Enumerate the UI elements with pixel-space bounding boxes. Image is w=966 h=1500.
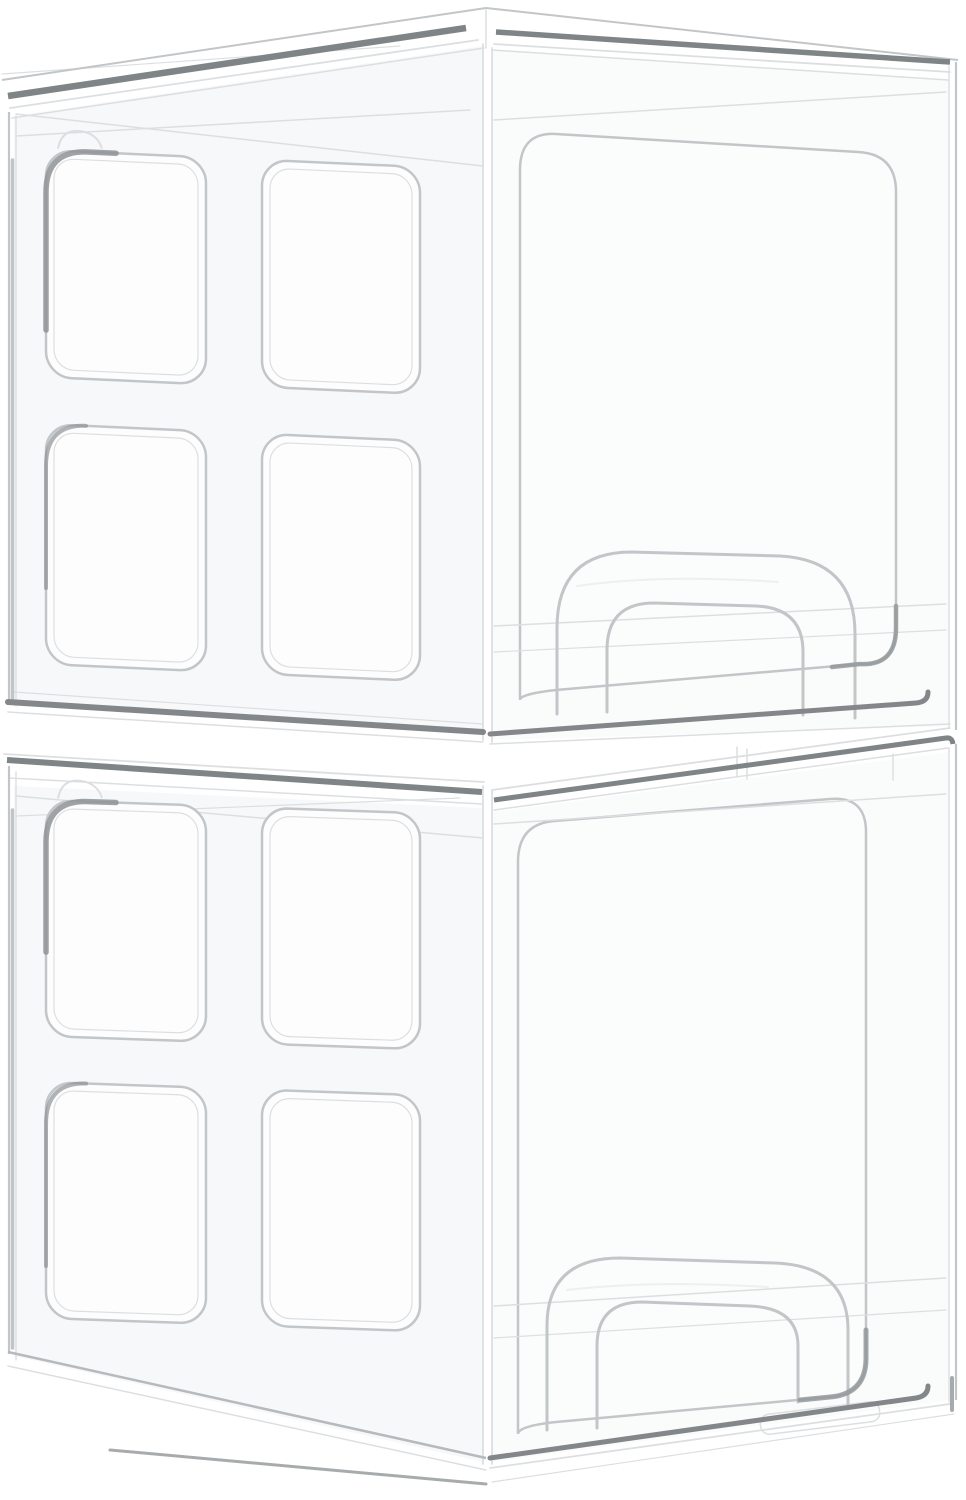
bottom-drawer-front-panel <box>518 799 866 1434</box>
side-panel <box>46 1082 206 1324</box>
side-panel <box>262 160 420 394</box>
side-panel <box>46 800 206 1042</box>
side-panel <box>262 1090 420 1332</box>
side-panel <box>262 434 420 681</box>
side-panel <box>262 808 420 1050</box>
side-panel <box>46 424 206 671</box>
top-drawer-unit <box>2 8 958 744</box>
bottom-drawer-unit <box>4 728 956 1484</box>
product-photo: Two stacked clear plastic stackable stor… <box>0 0 966 1500</box>
side-panel <box>46 150 206 384</box>
product-image: Two stacked clear plastic stackable stor… <box>0 0 966 1500</box>
